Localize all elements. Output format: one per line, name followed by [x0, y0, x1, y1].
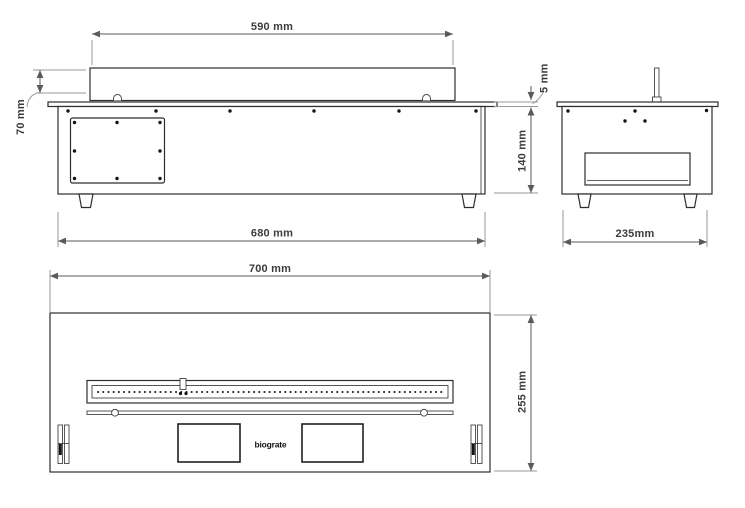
front-pin-right — [422, 95, 430, 101]
front-pin-left — [113, 95, 121, 101]
dimension-side-height: 140 mm — [494, 108, 538, 194]
top-igniter-dot-left — [179, 392, 182, 395]
dim-label-70: 70 mm — [15, 99, 27, 135]
top-tank-left — [178, 424, 240, 462]
front-foot-right — [462, 194, 476, 208]
top-rail-knob-left — [112, 409, 119, 416]
dim-label-680: 680 mm — [251, 228, 293, 240]
top-view: biograte 700 mm 255 mm — [50, 263, 537, 472]
front-view: 590 mm 70 mm 680 mm — [15, 21, 497, 247]
side-foot-right — [684, 194, 697, 208]
dimension-insert-width: 590 mm — [92, 21, 453, 65]
dimension-plate-thickness: 5 mm — [494, 63, 551, 106]
dim-label-140: 140 mm — [517, 130, 529, 172]
dim-label-255: 255 mm — [517, 371, 529, 413]
dimension-top-width: 700 mm — [50, 263, 490, 312]
side-top-plate — [557, 102, 718, 107]
dimension-top-depth: 255 mm — [494, 315, 537, 471]
drawing-canvas: 590 mm 70 mm 680 mm — [0, 0, 745, 508]
dim-label-5: 5 mm — [539, 63, 551, 93]
top-tank-right — [302, 424, 363, 462]
front-foot-left — [79, 194, 93, 208]
side-view: 5 mm 140 mm 235mm — [494, 63, 718, 247]
top-igniter-tab — [180, 379, 186, 390]
brand-logo: biograte — [255, 440, 287, 450]
dim-label-235: 235mm — [616, 228, 655, 240]
top-rail-knob-right — [421, 409, 428, 416]
side-rod — [655, 68, 660, 98]
front-burner-insert — [90, 68, 455, 101]
dim-label-700: 700 mm — [249, 263, 291, 275]
front-top-plate — [48, 102, 497, 107]
dimension-side-depth: 235mm — [563, 210, 707, 247]
dim-label-590: 590 mm — [251, 21, 293, 33]
top-slider-rail — [87, 411, 453, 415]
technical-drawing-page: 590 mm 70 mm 680 mm — [0, 0, 745, 508]
front-access-panel — [71, 118, 165, 183]
dimension-front-width: 680 mm — [58, 212, 485, 247]
side-foot-left — [578, 194, 591, 208]
top-igniter-dot-right — [184, 392, 187, 395]
